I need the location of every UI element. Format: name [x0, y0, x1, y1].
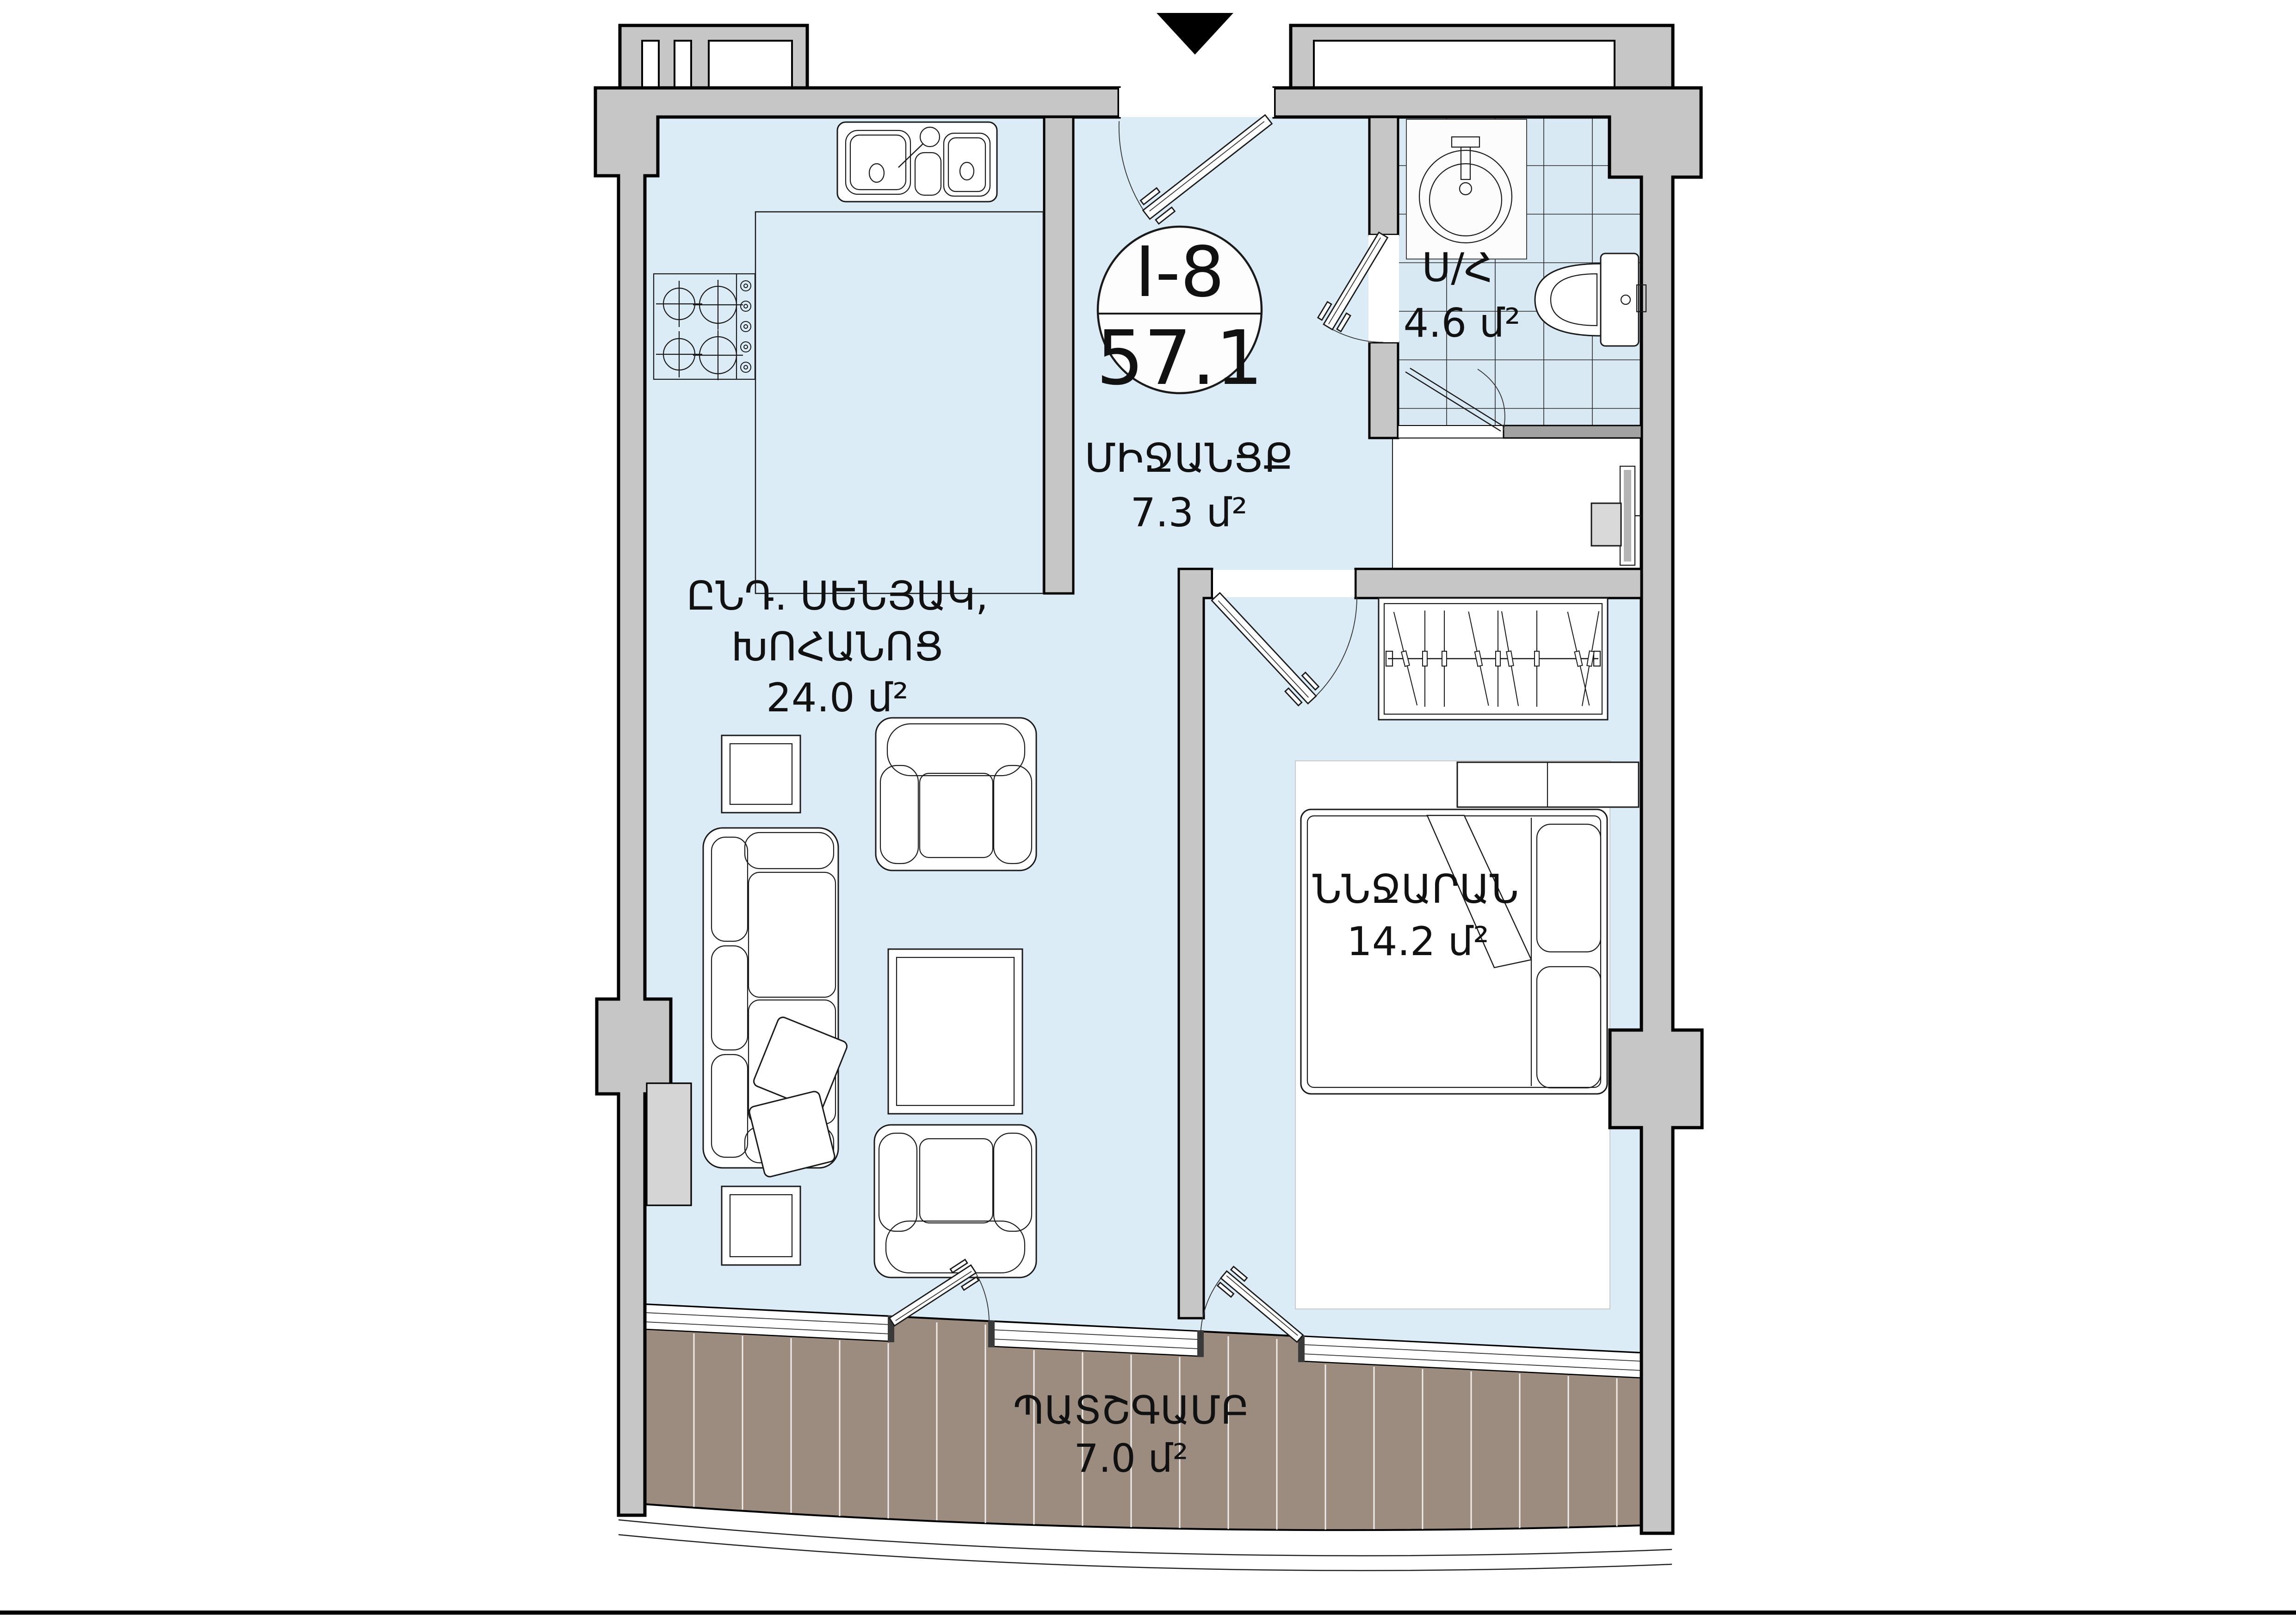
bedroom-door-threshold	[1213, 570, 1355, 597]
balcony-area: 7.0 մ²	[1074, 1436, 1188, 1481]
bedroom-name: ՆՆՋԱՐԱՆ	[1312, 866, 1519, 913]
armchair	[876, 718, 1036, 870]
window-bay-right	[1291, 25, 1673, 88]
window-bay-left	[620, 25, 807, 88]
bathroom-sink	[1406, 119, 1527, 259]
wall-kitchen-hallway	[1044, 117, 1073, 593]
bedroom-area: 14.2 մ²	[1347, 919, 1489, 965]
living-area: 24.0 մ²	[766, 675, 909, 721]
balcony-name: ՊԱՏՇԳԱՄԲ	[1013, 1388, 1249, 1433]
unit-area: 57.1	[1096, 315, 1263, 402]
armchair	[874, 1125, 1036, 1277]
triangle-down-icon	[1157, 13, 1233, 55]
door-jamb	[988, 1321, 995, 1347]
floor-plan: I-8 57.1 ՄԻՋԱՆՑՔ 7.3 մ² Ս/Հ 4.6 մ² ԸՆԴ. …	[0, 0, 2296, 1623]
unit-badge: I-8 57.1	[1096, 227, 1263, 402]
sofa	[703, 828, 848, 1178]
wardrobe	[1379, 598, 1608, 720]
kitchen-sink	[837, 122, 997, 202]
living-name-line1: ԸՆԴ. ՍԵՆՅԱԿ,	[687, 573, 988, 619]
side-table	[722, 735, 800, 813]
living-name-line2: ԽՈՀԱՆՈՑ	[731, 624, 943, 670]
wall-bathroom-lower	[1369, 342, 1398, 438]
tv-panel	[647, 1083, 691, 1205]
wall-bedroom-top	[1355, 569, 1641, 598]
bathroom-name: Ս/Հ	[1422, 245, 1492, 291]
unit-code: I-8	[1135, 232, 1225, 313]
bottom-border-line	[0, 1611, 2296, 1615]
wall-bathroom-bottom	[1504, 426, 1641, 438]
coffee-table	[888, 949, 1022, 1114]
bathroom-area: 4.6 մ²	[1403, 300, 1520, 346]
entrance-threshold	[1119, 88, 1274, 117]
hallway-area: 7.3 մ²	[1130, 490, 1247, 536]
side-table	[722, 1186, 800, 1265]
wall-bathroom-upper	[1369, 117, 1398, 235]
dresser	[1457, 762, 1639, 807]
hallway-name: ՄԻՋԱՆՑՔ	[1084, 435, 1293, 481]
shower-partition	[1398, 426, 1504, 438]
